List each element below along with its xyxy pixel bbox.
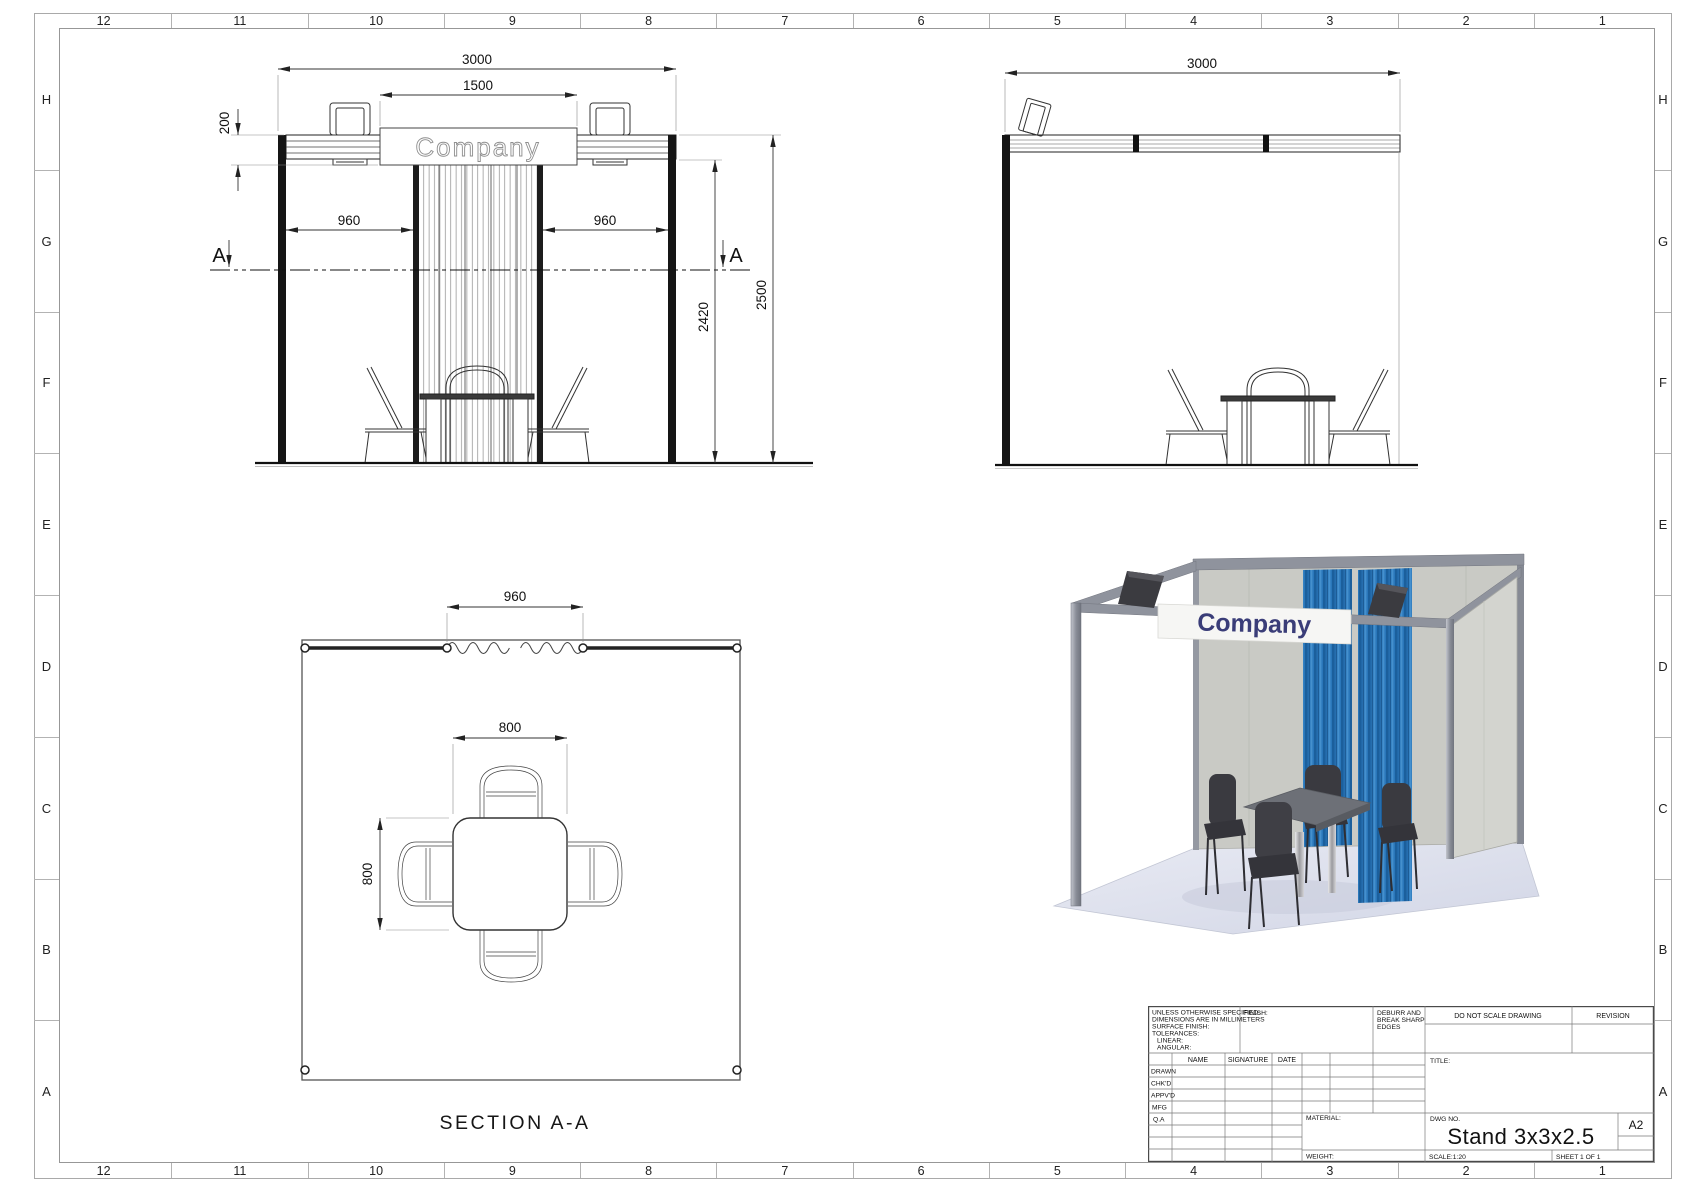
svg-text:BREAK SHARP: BREAK SHARP xyxy=(1377,1017,1425,1024)
section-letter-right: A xyxy=(729,245,743,267)
dim-fascia-height: 200 xyxy=(217,112,232,135)
grid-row: F xyxy=(1655,313,1671,455)
grid-strip-top: 12 11 10 9 8 7 6 5 4 3 2 1 xyxy=(36,14,1670,28)
grid-row: B xyxy=(34,880,59,1022)
grid-col: 10 xyxy=(309,1163,445,1178)
dim-overall-width: 3000 xyxy=(462,52,492,67)
row-mfg: MFG xyxy=(1152,1105,1167,1112)
grid-col: 10 xyxy=(309,14,445,28)
grid-col: 6 xyxy=(854,1163,990,1178)
svg-text:DEBURR AND: DEBURR AND xyxy=(1377,1010,1421,1017)
table-plan xyxy=(453,818,567,930)
scale-label: SCALE:1:20 xyxy=(1429,1154,1466,1161)
svg-text:LINEAR:: LINEAR: xyxy=(1157,1038,1183,1045)
grid-row: C xyxy=(34,738,59,880)
company-sign: Company xyxy=(380,128,577,165)
plan-curtain-wave xyxy=(447,643,509,654)
grid-strip-right: H G F E D C B A xyxy=(1655,29,1671,1162)
grid-row: H xyxy=(34,29,59,171)
svg-text:DIMENSIONS ARE IN MILLIMETERS: DIMENSIONS ARE IN MILLIMETERS xyxy=(1152,1017,1265,1024)
grid-strip-bottom: 12 11 10 9 8 7 6 5 4 3 2 1 xyxy=(36,1163,1670,1178)
post-right xyxy=(668,135,676,463)
grid-col: 12 xyxy=(36,14,172,28)
dwg-no-value: Stand 3x3x2.5 xyxy=(1447,1124,1594,1149)
grid-row: F xyxy=(34,313,59,455)
dim-table-depth: 800 xyxy=(360,863,375,886)
section-letter-left: A xyxy=(212,245,226,267)
company-sign-text: Company xyxy=(415,132,540,162)
grid-col: 1 xyxy=(1535,1163,1670,1178)
chair-plan-right xyxy=(568,842,622,906)
grid-col: 5 xyxy=(990,1163,1126,1178)
title-block: UNLESS OTHERWISE SPECIFIED: DIMENSIONS A… xyxy=(1148,1006,1654,1162)
dwg-no-label: DWG NO. xyxy=(1430,1116,1460,1123)
chair-plan-bottom xyxy=(480,930,542,982)
grid-row: G xyxy=(1655,171,1671,313)
dim-sign-width: 1500 xyxy=(463,78,493,93)
drawing-sheet: 12 11 10 9 8 7 6 5 4 3 2 1 12 11 10 9 8 … xyxy=(0,0,1684,1191)
title-label: TITLE: xyxy=(1430,1058,1450,1065)
svg-text:EDGES: EDGES xyxy=(1377,1024,1401,1031)
grid-row: G xyxy=(34,171,59,313)
chair-plan-top xyxy=(480,766,542,818)
paper-size: A2 xyxy=(1629,1118,1644,1132)
col-name: NAME xyxy=(1188,1057,1209,1064)
grid-col: 11 xyxy=(172,1163,308,1178)
grid-row: D xyxy=(34,596,59,738)
dim-left-bay: 960 xyxy=(338,213,361,228)
do-not-scale-label: DO NOT SCALE DRAWING xyxy=(1454,1013,1542,1020)
grid-col: 3 xyxy=(1262,14,1398,28)
grid-col: 4 xyxy=(1126,14,1262,28)
render-3d-view: Company xyxy=(990,545,1570,945)
grid-col: 5 xyxy=(990,14,1126,28)
grid-col: 2 xyxy=(1399,1163,1535,1178)
grid-row: C xyxy=(1655,738,1671,880)
side-spotlight xyxy=(1018,98,1051,137)
side-beam xyxy=(1005,135,1400,152)
dim-curtain-width: 960 xyxy=(504,589,527,604)
grid-row: E xyxy=(1655,454,1671,596)
grid-col: 9 xyxy=(445,1163,581,1178)
grid-row: B xyxy=(1655,880,1671,1022)
front-elevation-view: Company A A 3000 1500 200 960 960 2 xyxy=(205,45,845,485)
post-left xyxy=(278,135,286,463)
grid-col: 2 xyxy=(1399,14,1535,28)
dim-table-width: 800 xyxy=(499,720,522,735)
grid-col: 6 xyxy=(854,14,990,28)
grid-row: E xyxy=(34,454,59,596)
grid-col: 1 xyxy=(1535,14,1670,28)
sheet-label: SHEET 1 OF 1 xyxy=(1556,1154,1601,1161)
grid-row: D xyxy=(1655,596,1671,738)
dim-total-height: 2500 xyxy=(754,280,769,310)
dim-side-width: 3000 xyxy=(1187,56,1217,71)
grid-strip-left: H G F E D C B A xyxy=(34,29,59,1162)
grid-col: 4 xyxy=(1126,1163,1262,1178)
side-elevation-view: 3000 xyxy=(990,60,1430,470)
weight-label: WEIGHT: xyxy=(1306,1154,1334,1161)
grid-col: 3 xyxy=(1262,1163,1398,1178)
render-post-front-right xyxy=(1446,619,1454,859)
grid-row: A xyxy=(1655,1021,1671,1162)
finish-label: FINISH: xyxy=(1244,1010,1268,1017)
grid-col: 8 xyxy=(581,14,717,28)
chair-plan-left xyxy=(398,842,452,906)
dim-right-bay: 960 xyxy=(594,213,617,228)
render-banner: Company xyxy=(1158,604,1351,644)
row-drawn: DRAWN xyxy=(1151,1069,1176,1076)
grid-col: 7 xyxy=(717,1163,853,1178)
side-post xyxy=(1002,135,1010,465)
section-label: SECTION A-A xyxy=(439,1112,590,1134)
dim-inner-height: 2420 xyxy=(696,302,711,332)
furniture-side xyxy=(1166,368,1390,465)
grid-col: 11 xyxy=(172,14,308,28)
render-post-back-right xyxy=(1517,560,1524,844)
row-chkd: CHK'D xyxy=(1151,1081,1171,1088)
col-date: DATE xyxy=(1278,1057,1296,1064)
revision-label: REVISION xyxy=(1596,1013,1629,1020)
svg-text:SURFACE FINISH:: SURFACE FINISH: xyxy=(1152,1024,1209,1031)
render-banner-text: Company xyxy=(1197,609,1312,640)
svg-text:TOLERANCES:: TOLERANCES: xyxy=(1152,1031,1199,1038)
render-spotlight-left xyxy=(1118,571,1164,608)
grid-col: 12 xyxy=(36,1163,172,1178)
svg-text:ANGULAR:: ANGULAR: xyxy=(1157,1045,1191,1052)
col-signature: SIGNATURE xyxy=(1228,1057,1269,1064)
grid-row: H xyxy=(1655,29,1671,171)
grid-col: 7 xyxy=(717,14,853,28)
plan-section-view: 960 800 800 xyxy=(260,580,770,1160)
material-label: MATERIAL: xyxy=(1306,1115,1341,1122)
grid-col: 8 xyxy=(581,1163,717,1178)
row-qa: Q.A xyxy=(1153,1117,1165,1124)
render-post-front-left xyxy=(1071,603,1081,906)
row-appvd: APPV'D xyxy=(1151,1093,1175,1100)
grid-row: A xyxy=(34,1021,59,1162)
render-right-wall xyxy=(1452,577,1517,858)
grid-col: 9 xyxy=(445,14,581,28)
